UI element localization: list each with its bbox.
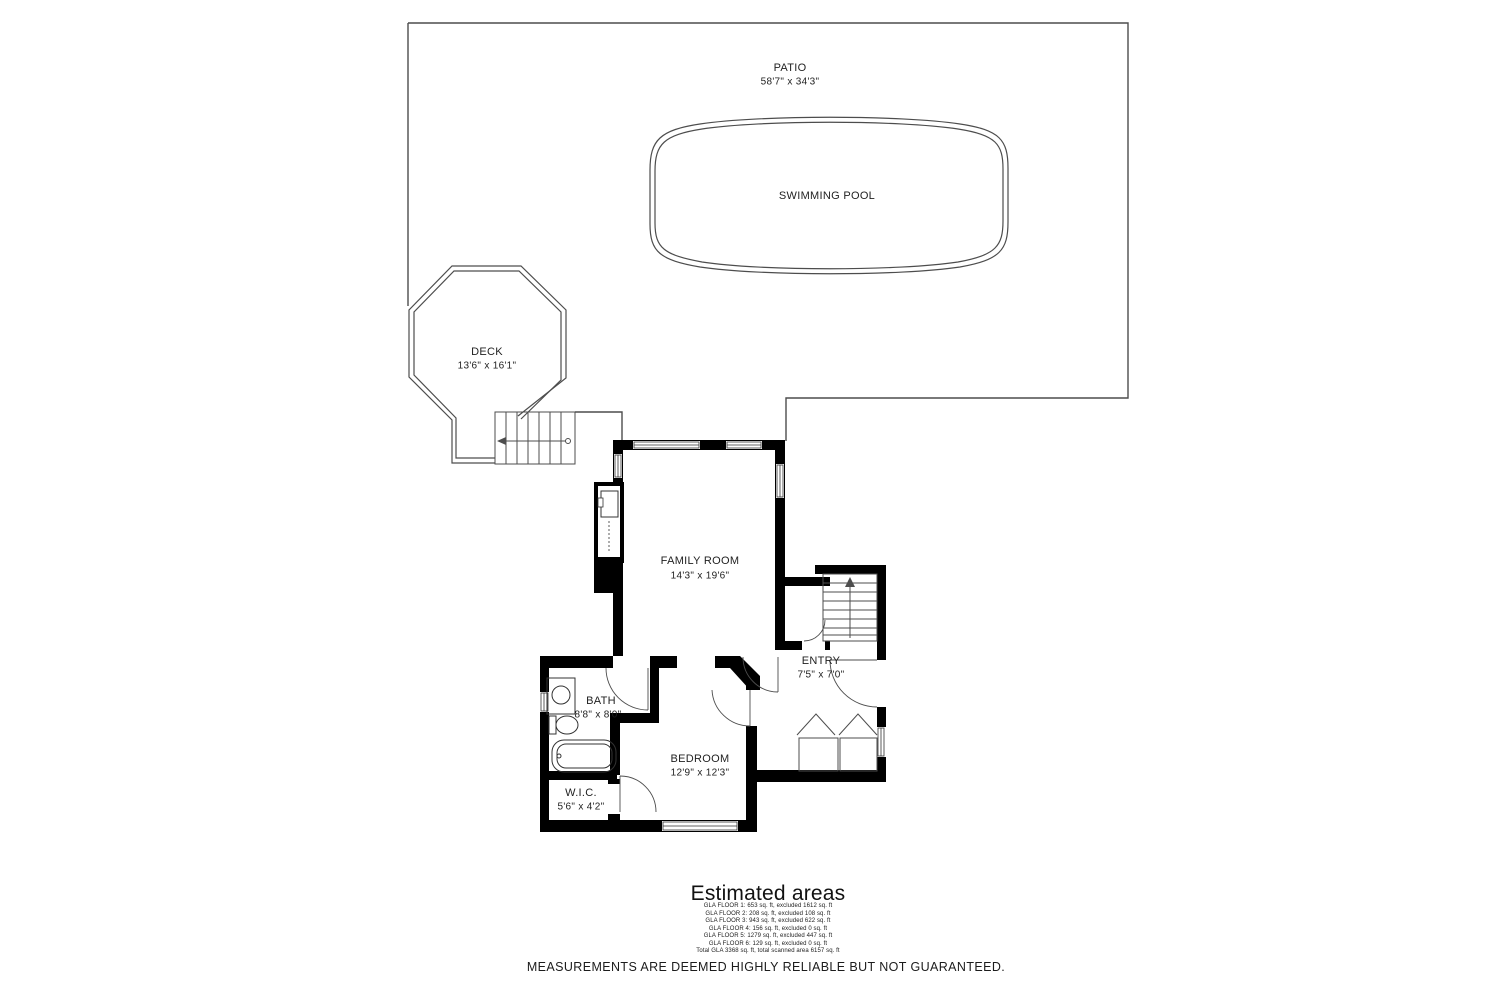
gla-total-line: Total GLA 3368 sq. ft, total scanned are… <box>696 948 839 956</box>
wic-dims: 5'6" x 4'2" <box>557 802 604 813</box>
gla-line: GLA FLOOR 1: 653 sq. ft, excluded 1612 s… <box>696 903 839 911</box>
estimated-areas-list: GLA FLOOR 1: 653 sq. ft, excluded 1612 s… <box>696 903 839 956</box>
toilet-tank-icon <box>549 716 556 734</box>
gla-line: GLA FLOOR 6: 129 sq. ft, excluded 0 sq. … <box>696 941 839 949</box>
sink-basin-icon <box>552 686 570 704</box>
interior-stairs-icon <box>823 574 877 641</box>
floor-plan-page: PATIO 58'7" x 34'3" SWIMMING POOL DECK 1… <box>0 0 1500 1000</box>
gla-line: GLA FLOOR 4: 156 sq. ft, excluded 0 sq. … <box>696 926 839 934</box>
floor-plan-canvas <box>0 0 1500 1000</box>
entry-dims: 7'5" x 7'0" <box>797 670 844 681</box>
wic-label: W.I.C. <box>565 787 597 799</box>
entry-label: ENTRY <box>802 655 841 667</box>
bath-fixtures <box>547 678 616 772</box>
deck-dims: 13'6" x 16'1" <box>458 361 517 372</box>
patio-dims: 58'7" x 34'3" <box>761 77 820 88</box>
bedroom-label: BEDROOM <box>671 753 730 765</box>
gla-line: GLA FLOOR 2: 208 sq. ft, excluded 108 sq… <box>696 911 839 919</box>
entry-closet <box>797 714 877 771</box>
bedroom-dims: 12'9" x 12'3" <box>671 768 730 779</box>
bifold-door-icon <box>797 714 835 735</box>
deck-label: DECK <box>471 346 503 358</box>
pool-label: SWIMMING POOL <box>779 190 875 202</box>
disclaimer-text: MEASUREMENTS ARE DEEMED HIGHLY RELIABLE … <box>527 960 1005 974</box>
family-room-label: FAMILY ROOM <box>661 555 740 567</box>
fireplace-icon <box>598 486 620 557</box>
gla-line: GLA FLOOR 3: 943 sq. ft, excluded 622 sq… <box>696 918 839 926</box>
bath-label: BATH <box>586 695 616 707</box>
sink-icon <box>547 678 575 714</box>
bath-dims: 8'8" x 8'0" <box>574 710 621 721</box>
patio-label: PATIO <box>774 62 807 74</box>
deck-stairs-icon <box>495 412 575 464</box>
gla-line: GLA FLOOR 5: 1279 sq. ft, excluded 447 s… <box>696 933 839 941</box>
family-room-dims: 14'3" x 19'6" <box>671 571 730 582</box>
bifold-door-icon <box>839 714 877 735</box>
